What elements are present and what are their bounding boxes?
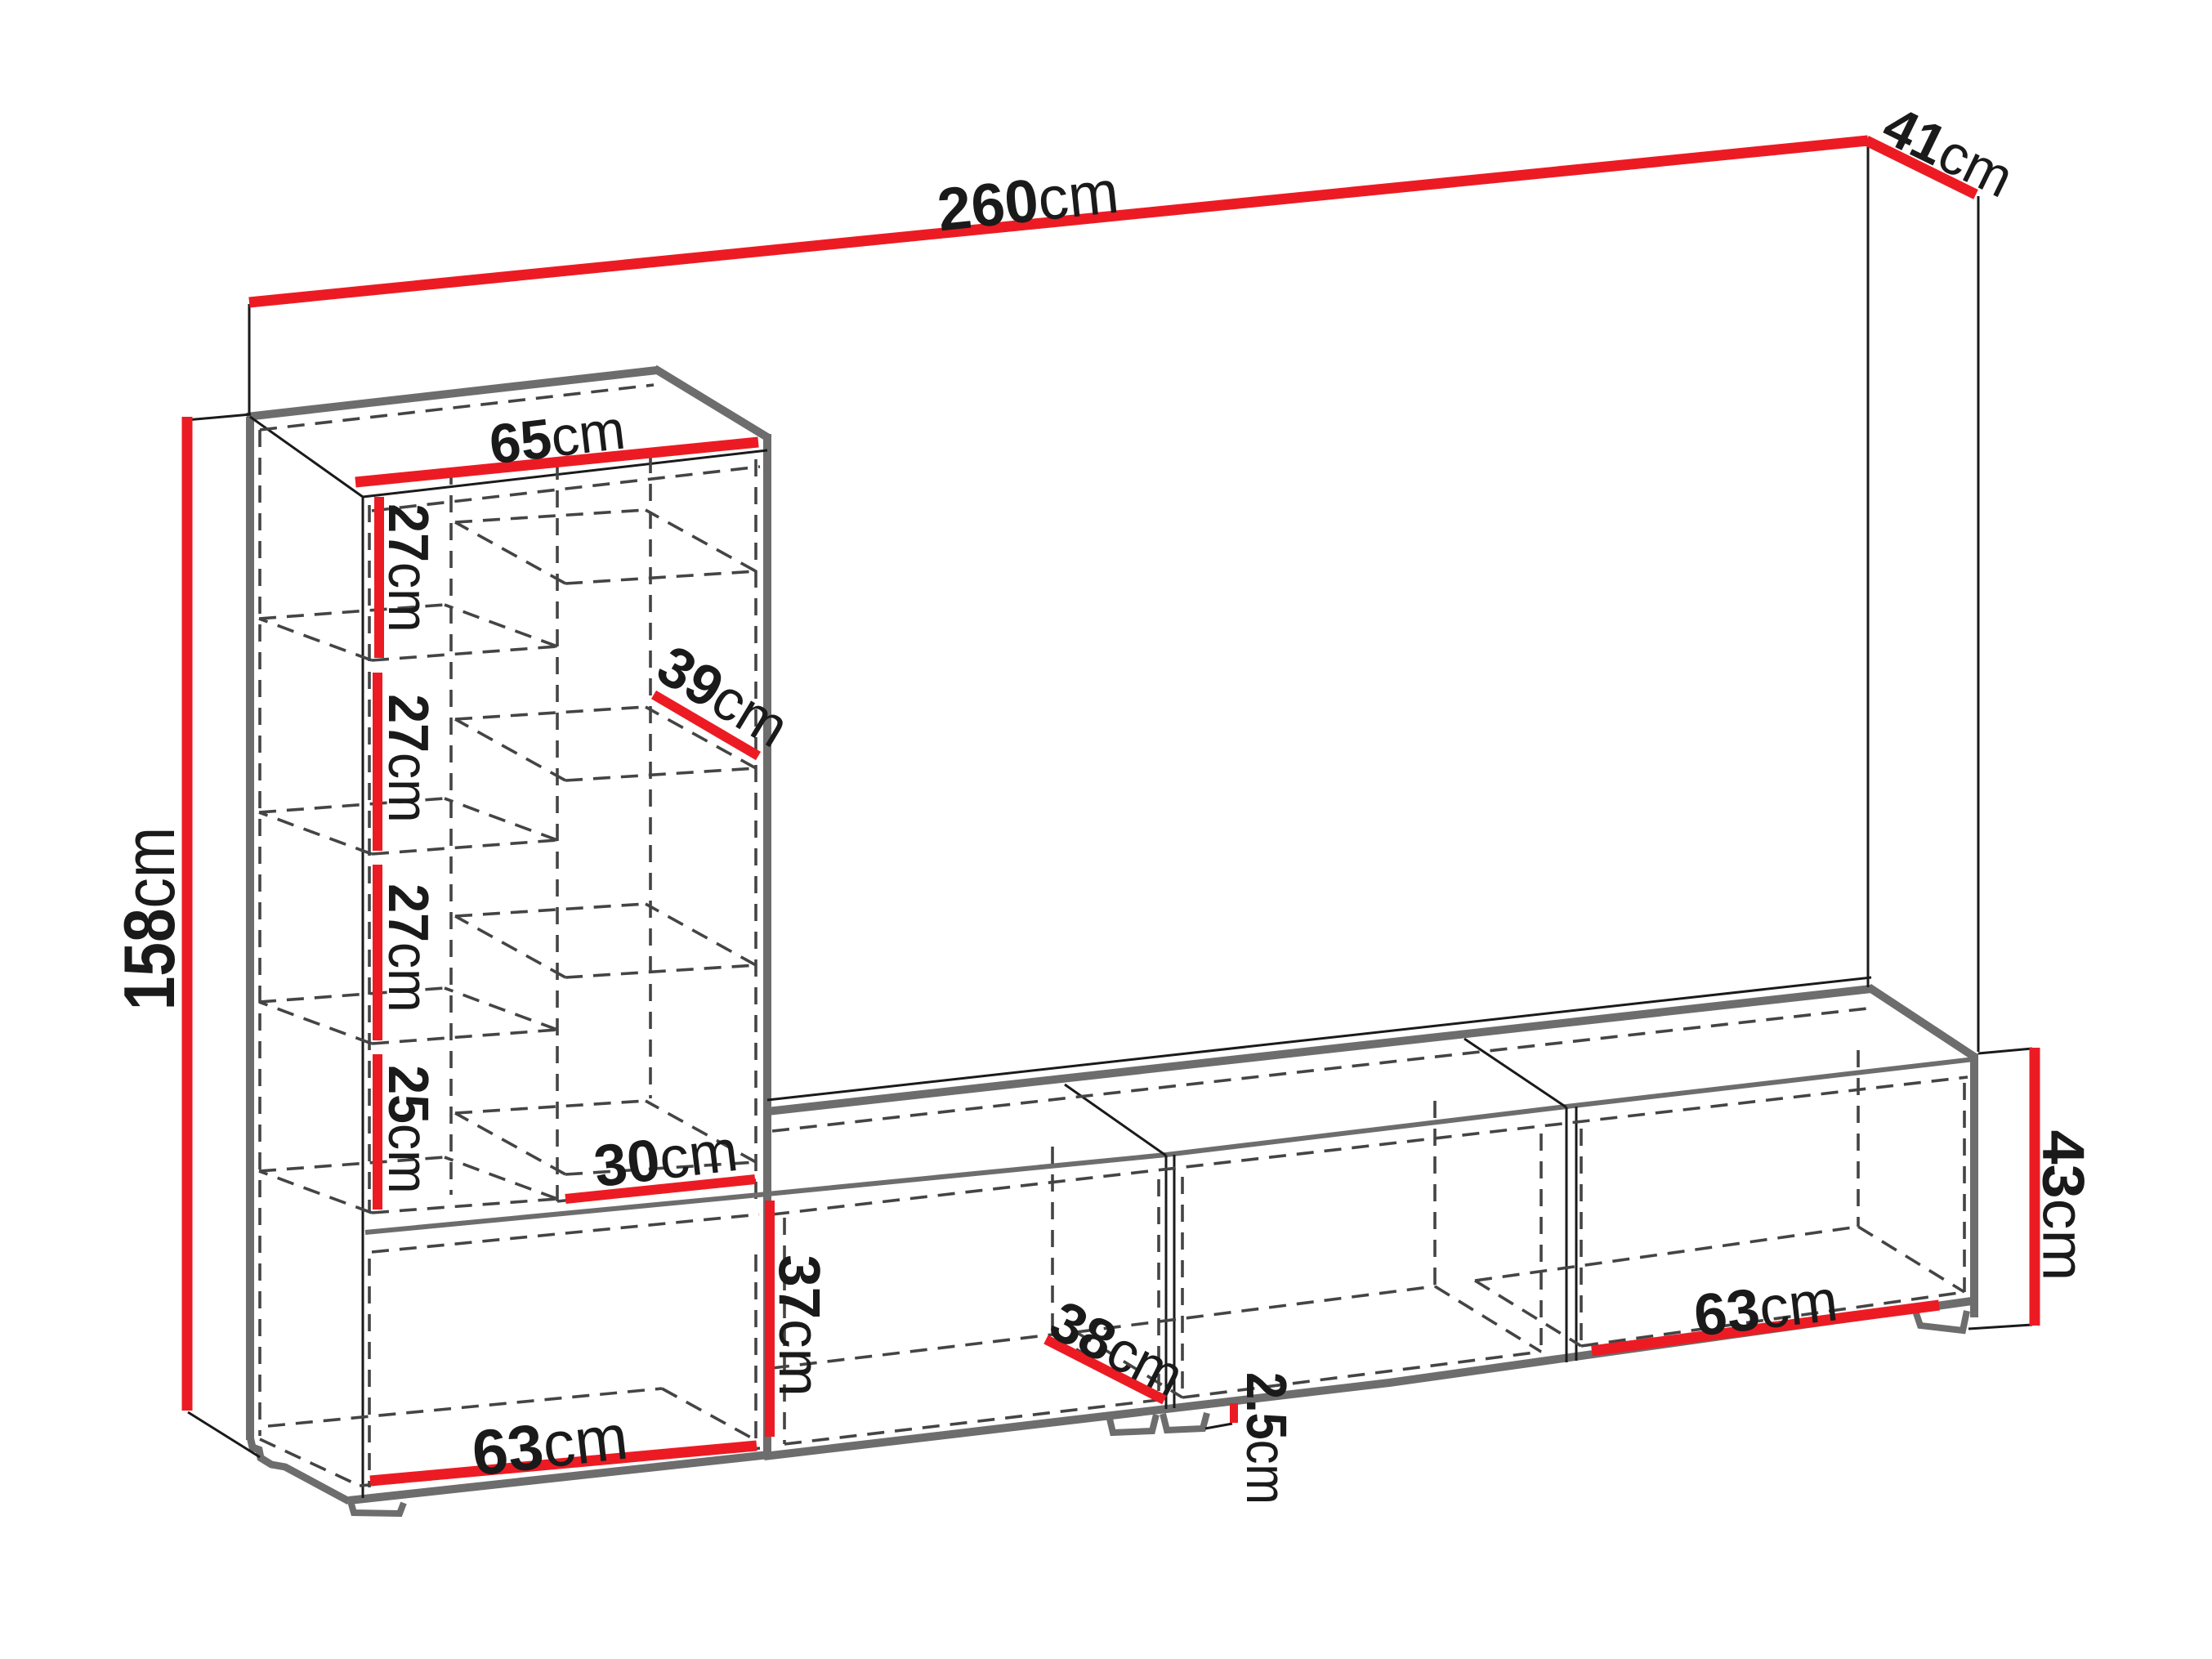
svg-text:27cm: 27cm xyxy=(377,694,440,822)
svg-text:27cm: 27cm xyxy=(377,883,440,1012)
svg-text:2.5cm: 2.5cm xyxy=(1236,1372,1300,1505)
svg-text:158cm: 158cm xyxy=(109,827,190,1010)
svg-text:43cm: 43cm xyxy=(2031,1130,2098,1281)
svg-text:27cm: 27cm xyxy=(377,503,440,632)
svg-text:37cm: 37cm xyxy=(767,1254,832,1397)
svg-text:25cm: 25cm xyxy=(377,1065,440,1193)
